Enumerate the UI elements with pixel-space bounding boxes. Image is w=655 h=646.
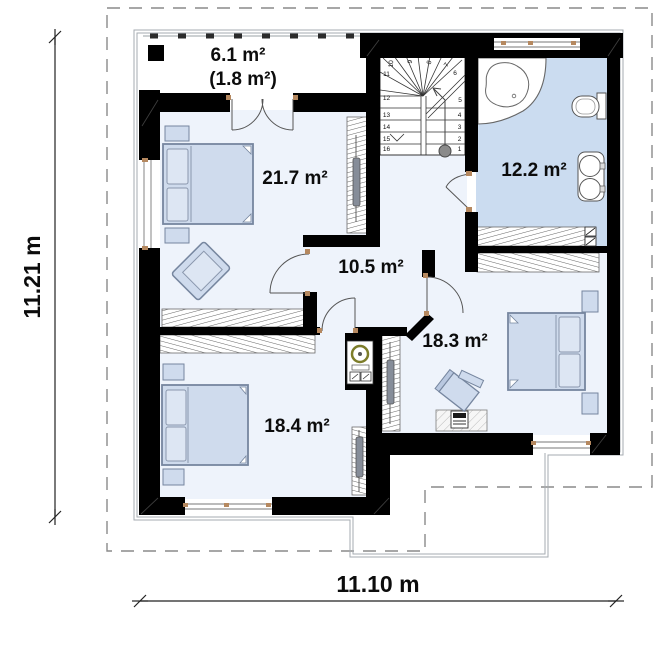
svg-text:12: 12 (383, 95, 391, 102)
bedroom2-area-label: 18.3 m² (422, 331, 487, 352)
pillow (166, 390, 186, 425)
window-south-bedroom2 (531, 436, 591, 453)
window-bathroom-north (494, 38, 580, 50)
bathroom-area-label: 12.2 m² (501, 160, 566, 181)
svg-text:1: 1 (458, 146, 462, 153)
window-west (139, 158, 160, 250)
pillow (166, 427, 186, 461)
radiator-bedroom2-left (387, 360, 394, 404)
pillow (559, 317, 580, 352)
svg-text:13: 13 (383, 112, 391, 119)
window-south-bedroom3 (183, 499, 272, 513)
height-dimension-label: 11.21 m (19, 235, 45, 318)
pillow (559, 354, 580, 387)
svg-text:11: 11 (383, 71, 390, 78)
svg-text:4: 4 (458, 112, 462, 119)
width-dimension-label: 11.10 m (336, 571, 419, 597)
toilet (572, 93, 606, 119)
pillow (167, 188, 188, 221)
balcony-area-label: 6.1 m² (211, 45, 266, 66)
stair-newel (439, 145, 451, 157)
svg-text:14: 14 (383, 124, 391, 131)
nightstand (582, 393, 598, 414)
radiator-bedroom1-right (353, 158, 360, 206)
staircase: 1 2 3 4 5 6 7 8 9 10 11 12 13 14 15 16 (380, 56, 467, 157)
svg-text:6: 6 (453, 70, 457, 77)
wardrobe-bedroom2-top (477, 253, 599, 272)
chimney (148, 45, 164, 61)
wardrobe-bedroom1-bottom (162, 309, 308, 327)
nightstand (582, 291, 598, 312)
svg-text:3: 3 (458, 124, 462, 131)
pillow (167, 149, 188, 184)
boiler-niche (347, 341, 373, 384)
nightstand (165, 126, 189, 141)
hallway-area-label: 10.5 m² (338, 257, 403, 278)
balcony-area-secondary-label: (1.8 m²) (209, 69, 277, 90)
svg-text:2: 2 (458, 136, 462, 143)
svg-text:10: 10 (388, 60, 396, 68)
nightstand (163, 364, 184, 380)
wardrobe-bathroom (477, 227, 585, 246)
wardrobe-bedroom3-top (160, 335, 315, 353)
desk-bedroom2 (436, 410, 487, 431)
svg-text:16: 16 (383, 146, 391, 153)
bedroom1-area-label: 21.7 m² (262, 168, 327, 189)
floor-plan-drawing: 1 2 3 4 5 6 7 8 9 10 11 12 13 14 15 16 (0, 0, 655, 646)
floor-plan-page: 1 2 3 4 5 6 7 8 9 10 11 12 13 14 15 16 (0, 0, 655, 646)
double-sink (578, 152, 605, 201)
nightstand (163, 469, 184, 485)
radiator-bedroom3-right (356, 437, 363, 477)
svg-text:15: 15 (383, 136, 391, 143)
nightstand (165, 228, 189, 243)
bedroom3-area-label: 18.4 m² (264, 416, 329, 437)
svg-text:5: 5 (458, 97, 462, 104)
